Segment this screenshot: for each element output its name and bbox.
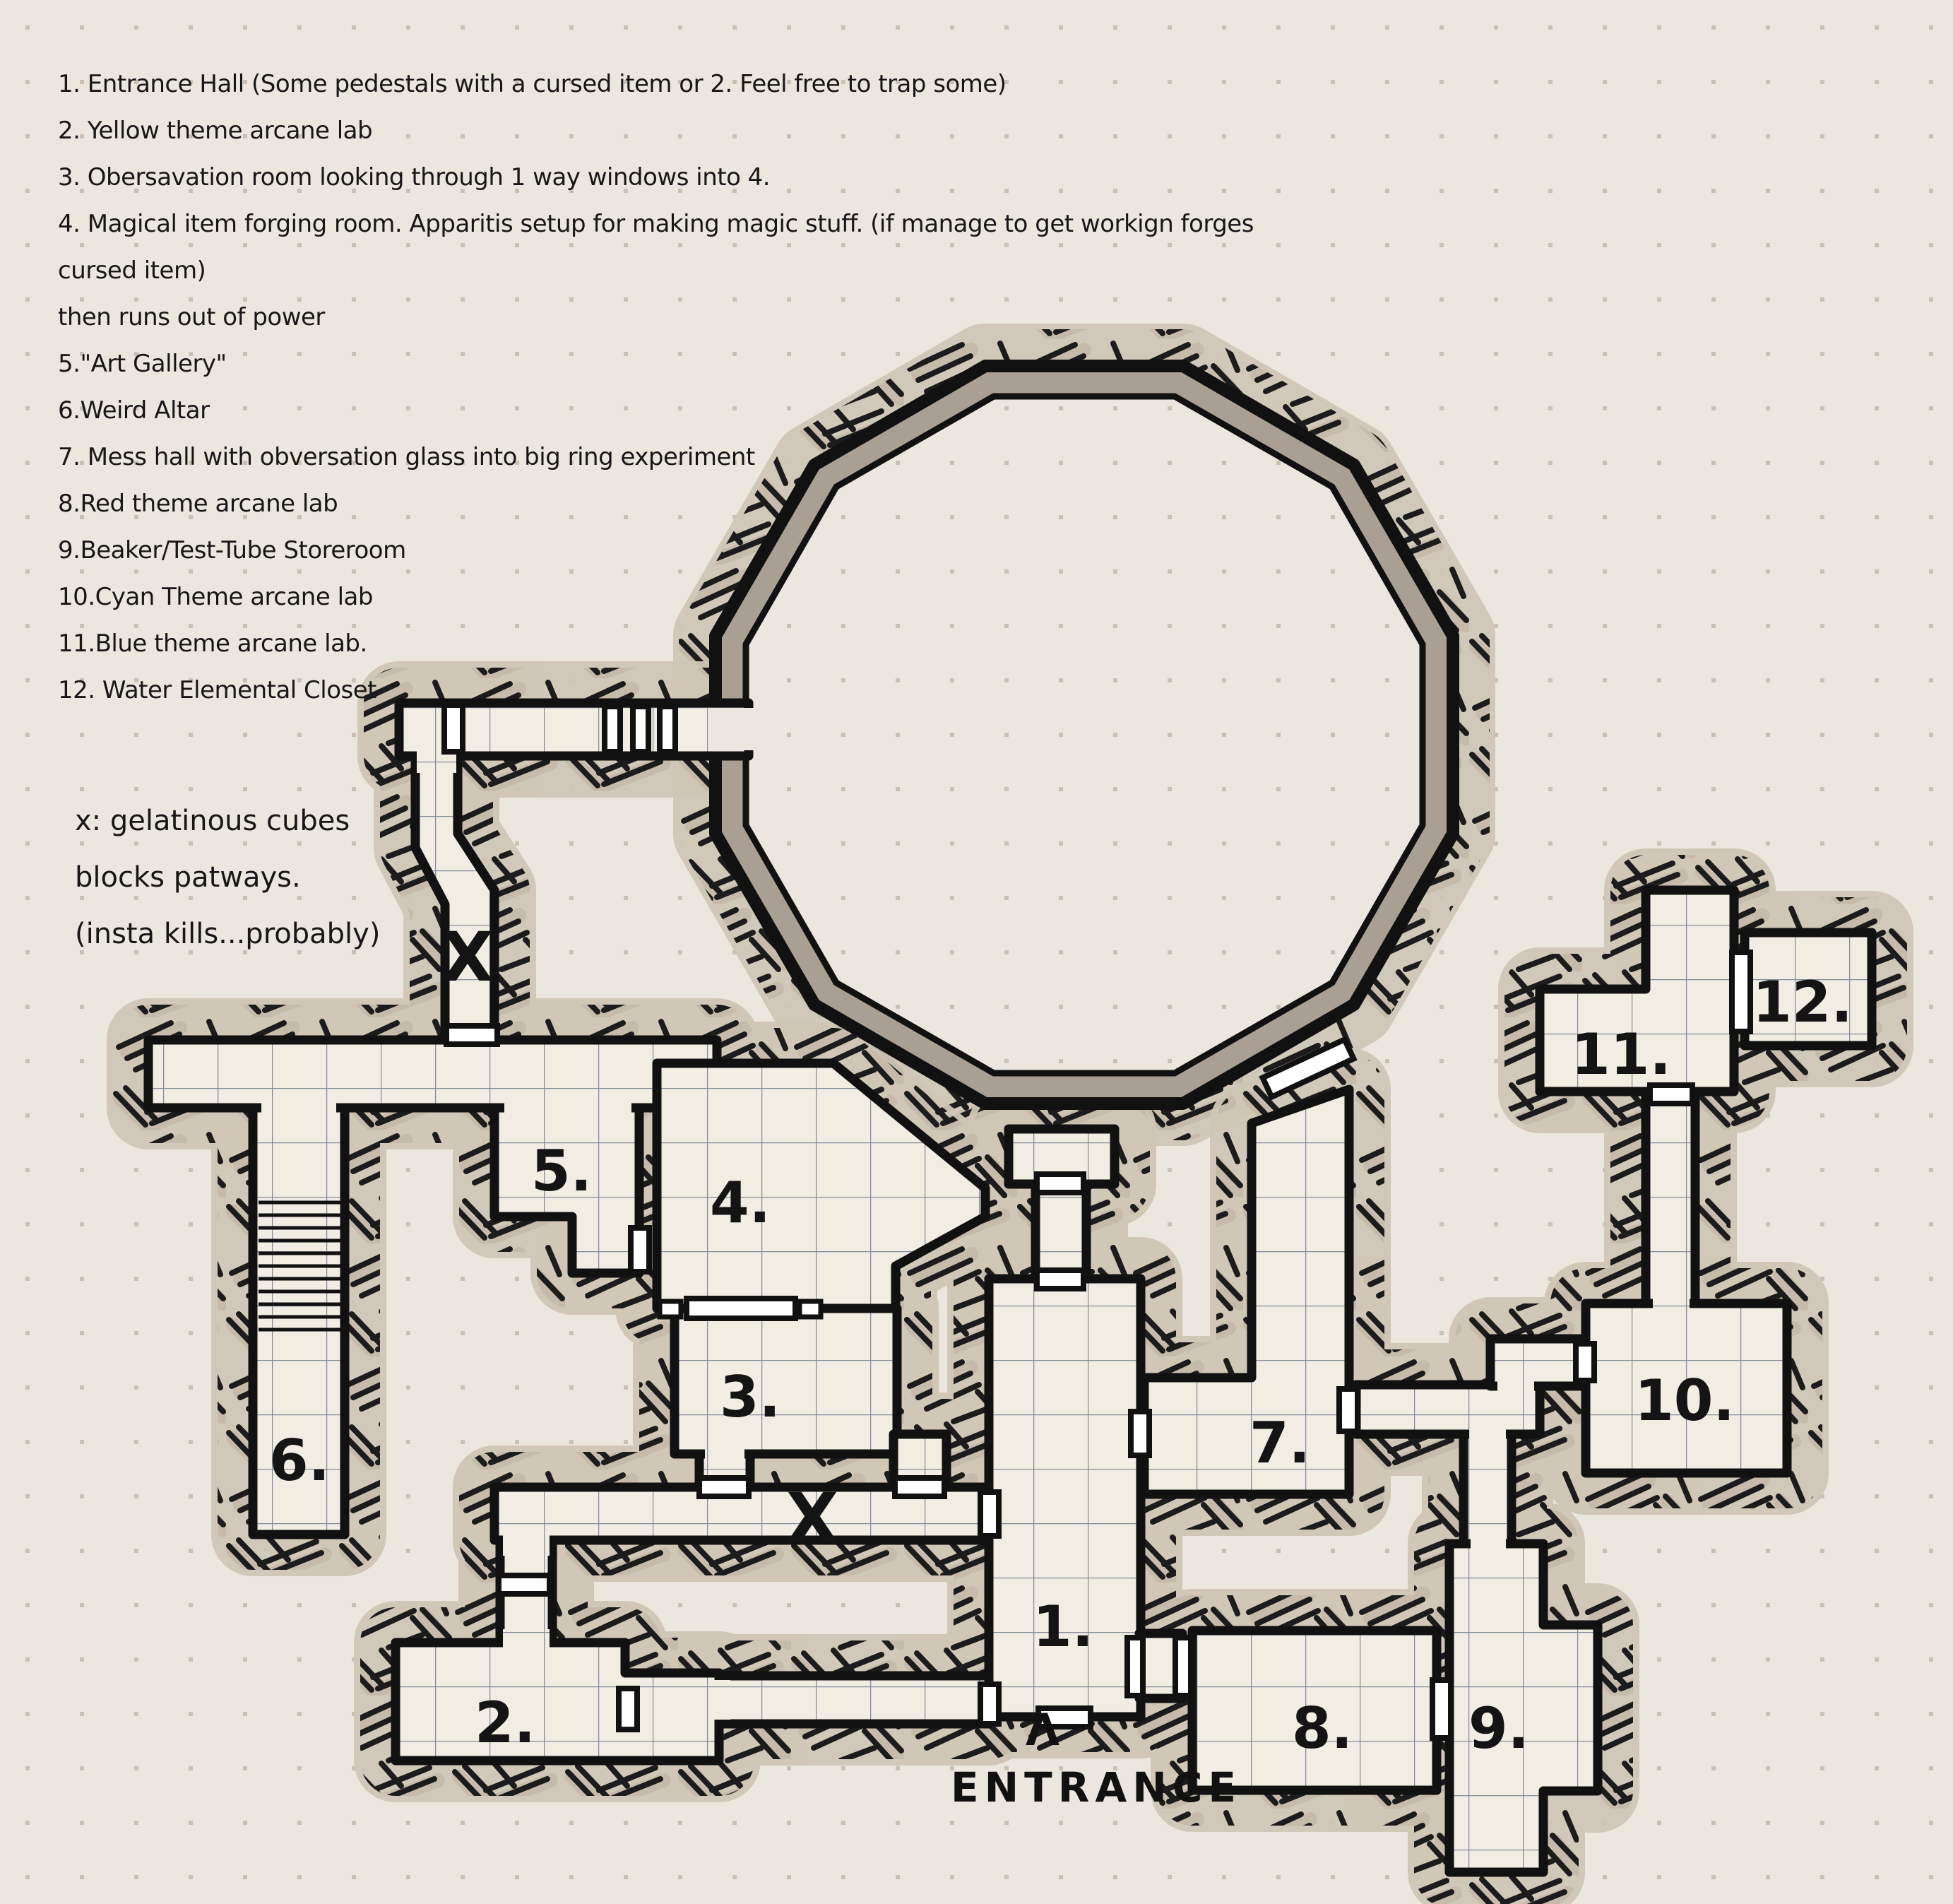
room-label-8: 8. (1292, 1696, 1353, 1761)
door (446, 1026, 497, 1044)
room-label-12: 12. (1752, 969, 1853, 1035)
door (1432, 1680, 1451, 1738)
opening-ring-corridor (708, 708, 754, 750)
gelatinous-cube-mark-2: X (786, 1479, 838, 1558)
door (699, 1478, 749, 1496)
room-label-11: 11. (1571, 1022, 1671, 1087)
door (1127, 1638, 1143, 1696)
door (1037, 1174, 1084, 1193)
dungeon-map-page: 1. 2. 3. 4. 5. 6. 7. 8. 9. 10. 11. 12. X… (0, 0, 1953, 1904)
door (980, 1684, 999, 1724)
room-label-1: 1. (1033, 1594, 1093, 1660)
door (619, 1689, 637, 1729)
door (499, 1575, 550, 1594)
door (1576, 1344, 1594, 1380)
room-label-10: 10. (1634, 1368, 1735, 1433)
room-label-2: 2. (475, 1690, 535, 1756)
door (980, 1492, 999, 1536)
door (1175, 1638, 1191, 1696)
entrance-label: ENTRANCE (951, 1763, 1242, 1811)
room-label-5: 5. (531, 1138, 592, 1204)
entrance-arrow: Λ (1026, 1704, 1059, 1756)
door (1732, 952, 1750, 1031)
door (1650, 1085, 1692, 1104)
room-label-4: 4. (710, 1170, 771, 1236)
door (1131, 1412, 1149, 1455)
door (895, 1478, 944, 1496)
door (1339, 1389, 1358, 1431)
one-way-windows (660, 1299, 821, 1318)
door (1037, 1270, 1084, 1289)
legend-text: 1. Entrance Hall (Some pedestals with a … (58, 61, 1294, 714)
room-label-3: 3. (720, 1364, 780, 1430)
gelatinous-cube-note: x: gelatinous cubes blocks patways. (ins… (75, 793, 470, 962)
room-label-9: 9. (1468, 1696, 1529, 1761)
room-label-6: 6. (269, 1428, 330, 1494)
door (631, 1228, 649, 1272)
room-label-7: 7. (1249, 1410, 1310, 1476)
